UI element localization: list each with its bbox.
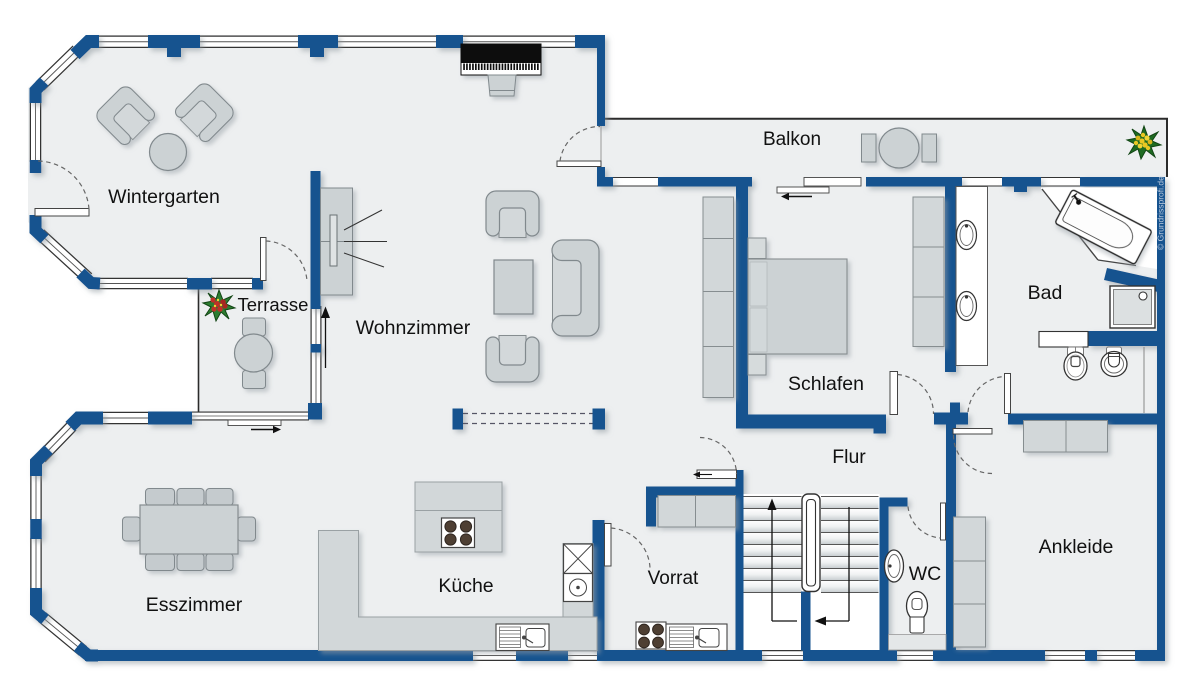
svg-text:Flur: Flur <box>832 446 866 468</box>
svg-text:Bad: Bad <box>1028 282 1063 304</box>
svg-text:Schlafen: Schlafen <box>788 373 864 395</box>
svg-text:Ankleide: Ankleide <box>1039 536 1114 558</box>
svg-text:Esszimmer: Esszimmer <box>146 594 243 616</box>
svg-text:© Grundrissprofi.de: © Grundrissprofi.de <box>1156 176 1166 250</box>
svg-text:Balkon: Balkon <box>763 129 821 150</box>
svg-text:Terrasse: Terrasse <box>238 294 309 315</box>
svg-text:Wohnzimmer: Wohnzimmer <box>356 317 471 339</box>
svg-text:Wintergarten: Wintergarten <box>108 186 220 208</box>
svg-text:Vorrat: Vorrat <box>648 568 699 589</box>
svg-text:Küche: Küche <box>438 575 493 597</box>
svg-text:WC: WC <box>909 563 942 585</box>
